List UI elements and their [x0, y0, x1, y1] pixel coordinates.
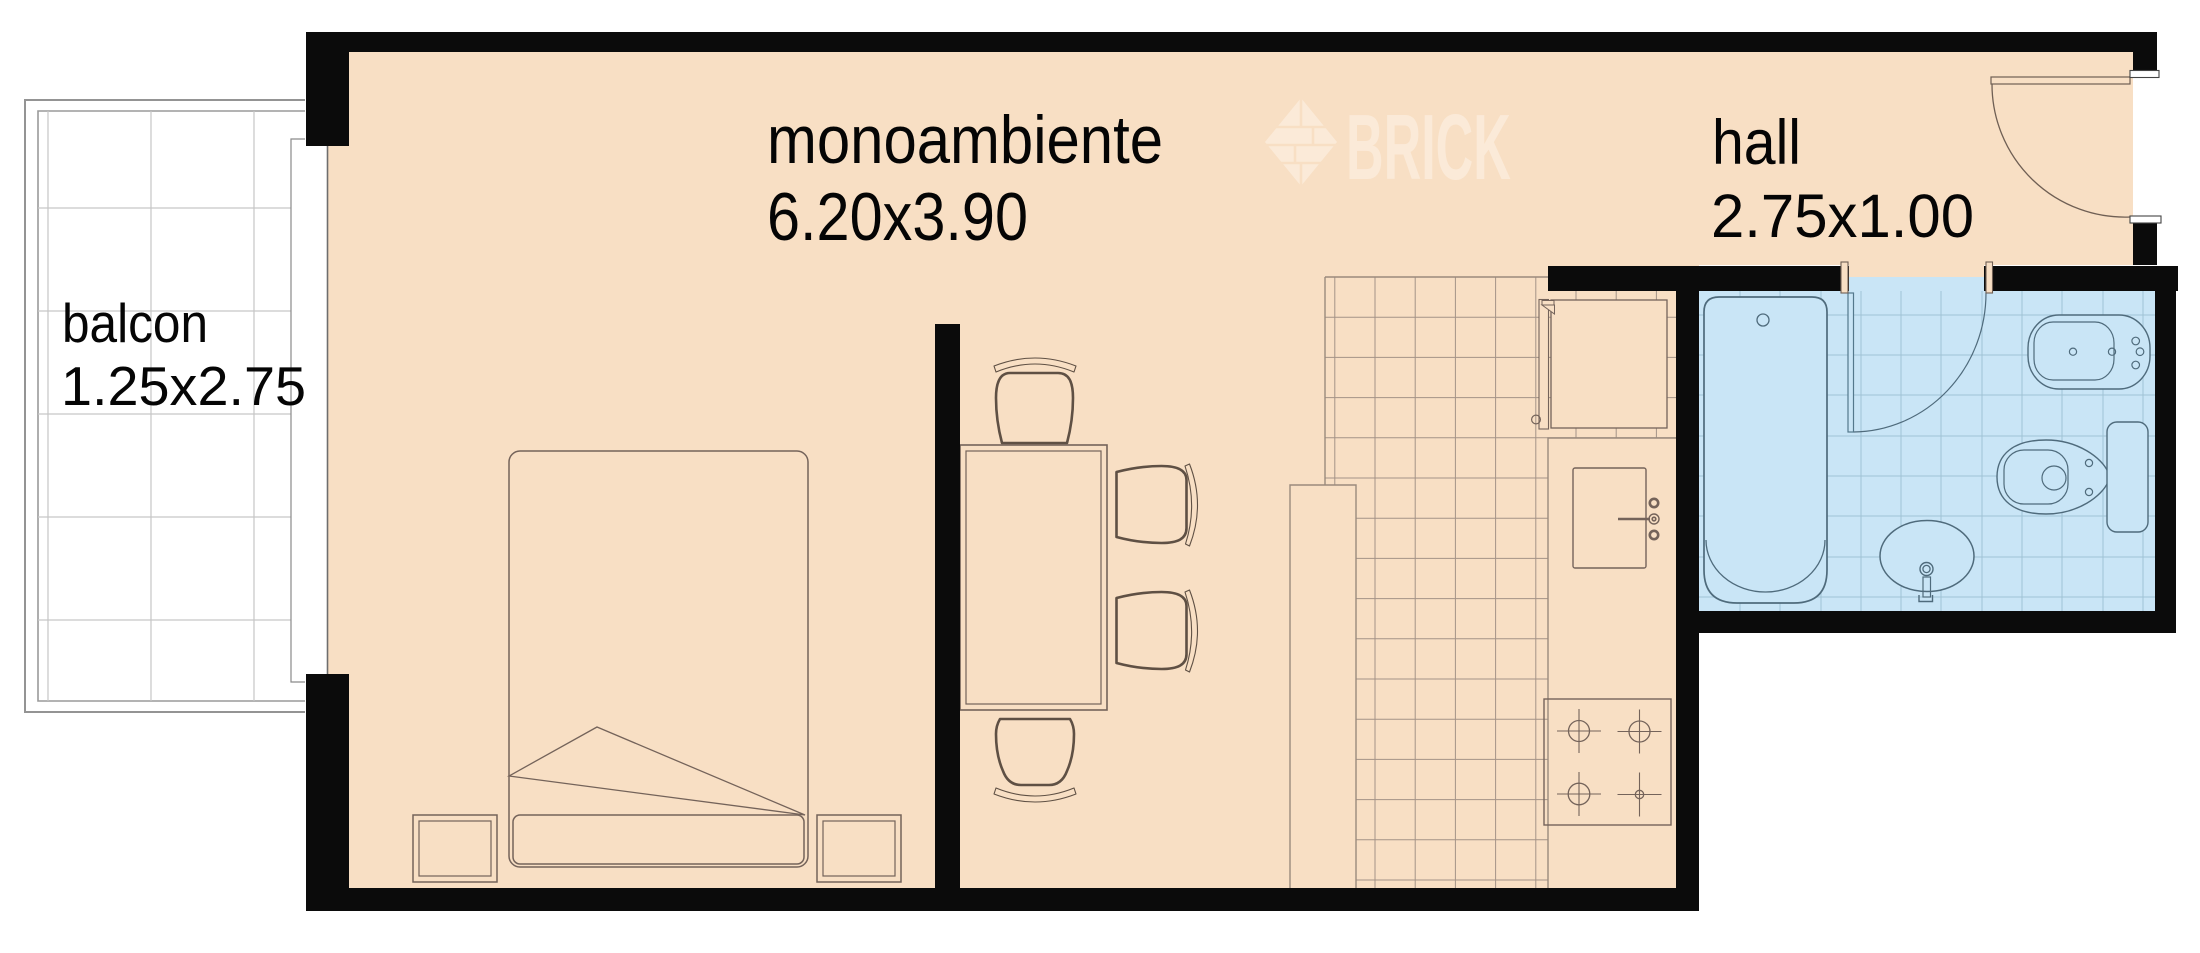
svg-text:balcon: balcon: [62, 292, 208, 354]
svg-text:monoambiente: monoambiente: [767, 102, 1163, 178]
svg-text:1.25x2.75: 1.25x2.75: [61, 355, 306, 417]
svg-text:2.75x1.00: 2.75x1.00: [1711, 182, 1974, 250]
svg-text:hall: hall: [1712, 108, 1801, 178]
svg-text:6.20x3.90: 6.20x3.90: [767, 179, 1028, 255]
svg-text:BRICK: BRICK: [1346, 95, 1511, 199]
